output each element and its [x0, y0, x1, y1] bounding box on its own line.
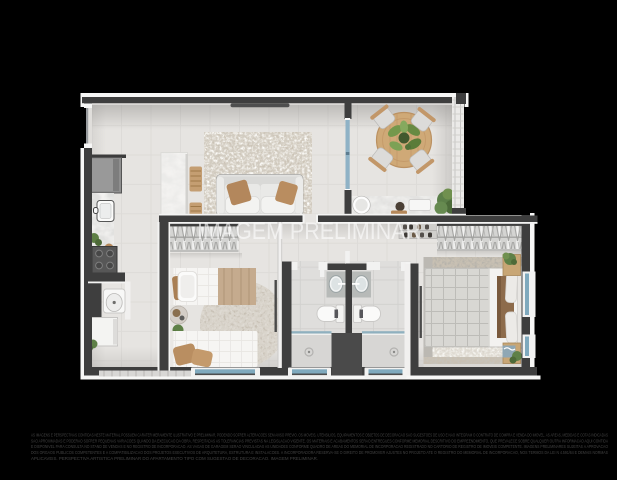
svg-text:IMAGEM PRELIMINAR: IMAGEM PRELIMINAR	[197, 218, 421, 245]
svg-text:DOS ORGAOS PUBLICOS COMPETENTE: DOS ORGAOS PUBLICOS COMPETENTES E A COMP…	[31, 450, 608, 455]
svg-text:E DISPONIVEL PARA CONSULTA NO: E DISPONIVEL PARA CONSULTA NO STAND DE V…	[31, 444, 608, 449]
svg-text:APLICAVEIS. PERSPECTIVA ARTIST: APLICAVEIS. PERSPECTIVA ARTISTICA PRELIM…	[31, 456, 318, 461]
svg-text:AS IMAGENS E PERSPECTIVAS CONT: AS IMAGENS E PERSPECTIVAS CONTIDAS NESTE…	[31, 433, 608, 438]
svg-text:SAO APROXIMADAS E PODERAO SOFR: SAO APROXIMADAS E PODERAO SOFRER PEQUENA…	[31, 438, 609, 443]
